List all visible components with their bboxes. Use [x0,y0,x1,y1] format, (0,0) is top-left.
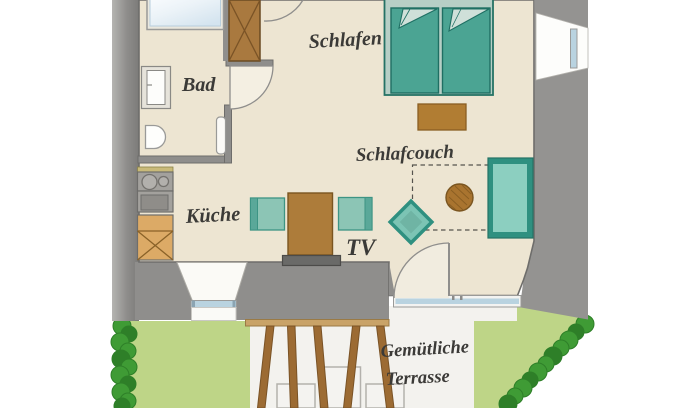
svg-text:Terrasse: Terrasse [385,367,450,390]
svg-text:Bad: Bad [181,74,216,96]
svg-text:Schlafcouch: Schlafcouch [355,142,454,166]
svg-text:Schlafen: Schlafen [308,27,382,53]
svg-text:TV: TV [346,235,377,260]
svg-text:Küche: Küche [184,203,241,228]
